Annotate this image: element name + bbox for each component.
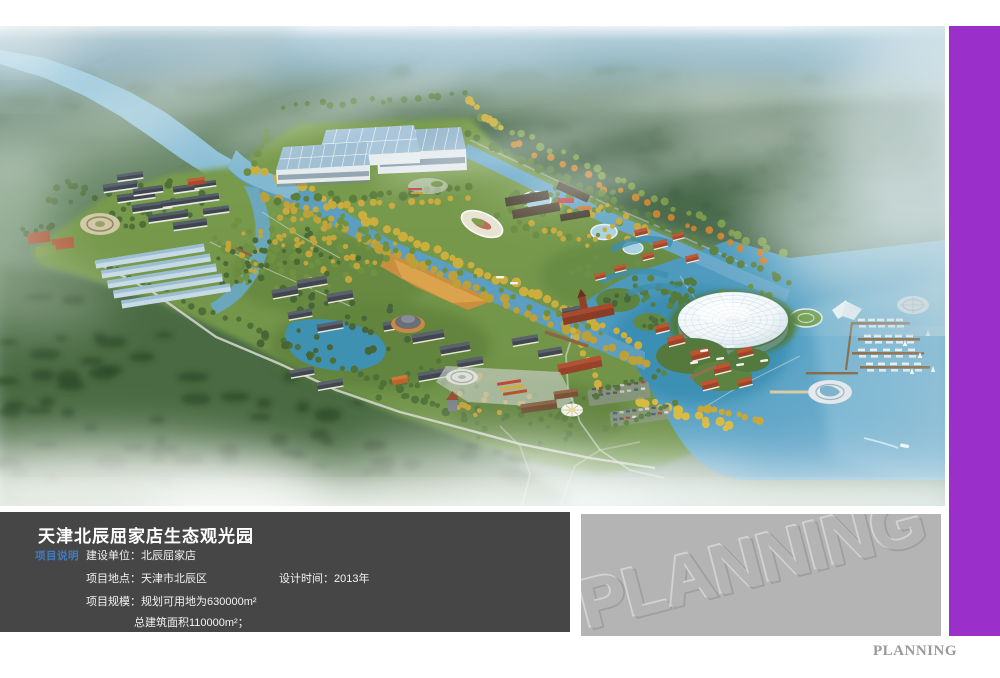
svg-text:PLANNING: PLANNING — [581, 514, 932, 636]
